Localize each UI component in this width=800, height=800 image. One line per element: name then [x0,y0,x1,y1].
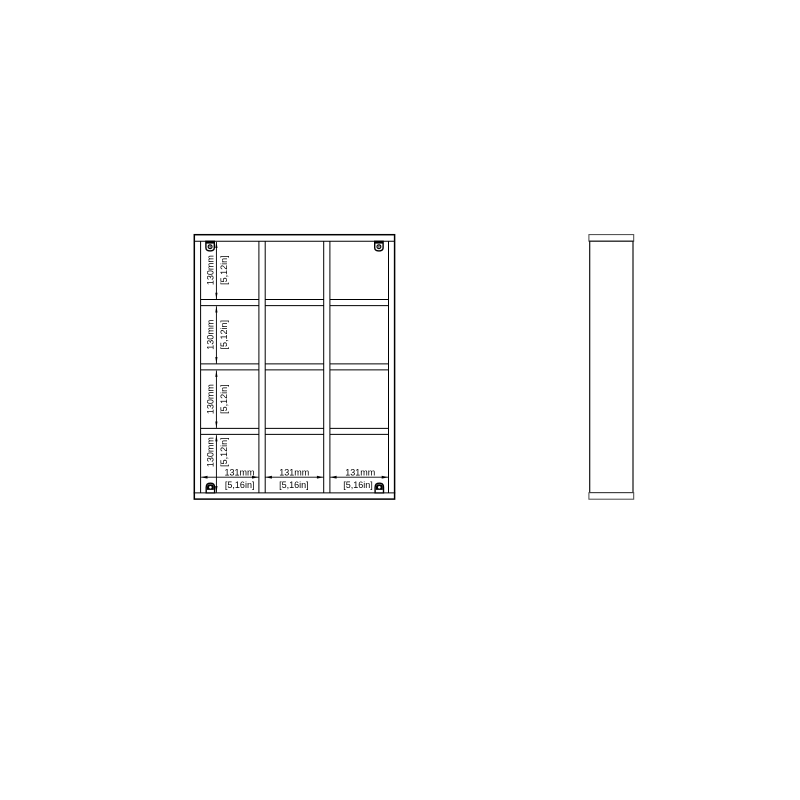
svg-text:[5,12in]: [5,12in] [219,255,229,285]
svg-text:130mm: 130mm [206,320,216,350]
svg-text:131mm: 131mm [224,467,254,477]
svg-text:[5,16in]: [5,16in] [225,480,255,490]
svg-text:[5,16in]: [5,16in] [279,480,309,490]
svg-text:130mm: 130mm [206,384,216,414]
svg-text:130mm: 130mm [206,255,216,285]
svg-text:130mm: 130mm [206,437,216,467]
svg-text:[5,12in]: [5,12in] [219,320,229,350]
svg-text:131mm: 131mm [279,467,309,477]
svg-text:[5,12in]: [5,12in] [219,384,229,414]
svg-text:131mm: 131mm [345,467,375,477]
svg-text:[5,12in]: [5,12in] [219,437,229,467]
svg-text:[5,16in]: [5,16in] [343,480,373,490]
